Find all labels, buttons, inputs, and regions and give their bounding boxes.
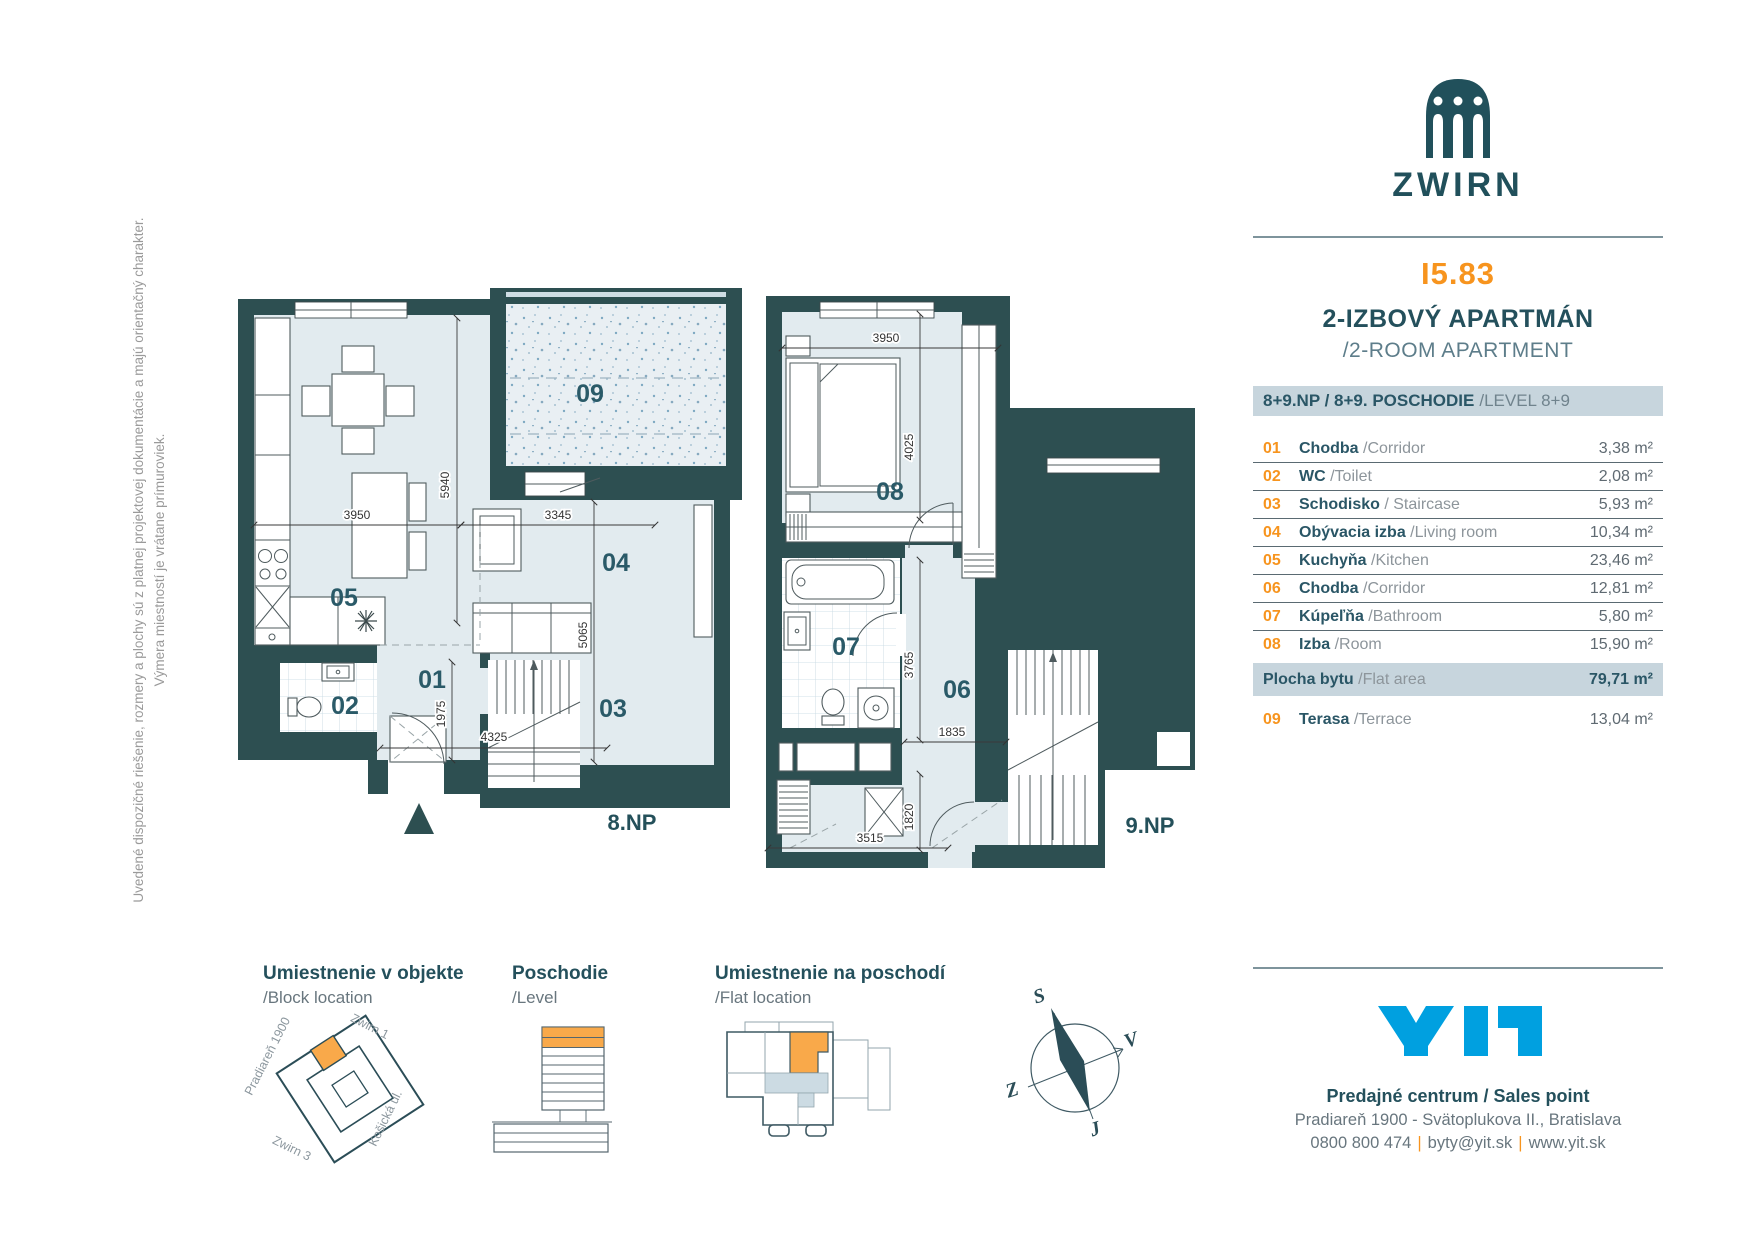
website-link[interactable]: www.yit.sk [1529, 1134, 1606, 1152]
vent-grille [777, 780, 810, 834]
apartment-type-sk: 2-IZBOVÝ APARTMÁN [1253, 305, 1663, 334]
room-label-04: 04 [602, 549, 630, 577]
row-name-en: /Kitchen [1371, 552, 1429, 569]
tv-board [694, 505, 712, 637]
terrace-floor [506, 304, 726, 466]
row-name-en: /Living room [1410, 524, 1497, 541]
legend-header: 8+9.NP / 8+9. POSCHODIE /LEVEL 8+9 [1253, 386, 1663, 416]
sales-point-title: Predajné centrum / Sales point [1253, 1086, 1663, 1107]
row-num: 09 [1263, 711, 1299, 729]
room-label-05: 05 [330, 584, 358, 612]
dim-kitchen-width: 3950 [344, 508, 371, 522]
room-label-09: 09 [576, 380, 604, 408]
hob-icon [355, 610, 377, 632]
level-diagram [492, 1027, 612, 1152]
bathtub [786, 560, 894, 604]
plan-8np: 3950 3345 5940 5065 1975 4325 05 01 02 0… [238, 288, 742, 835]
kitchen-counter [255, 318, 290, 645]
yit-logo [1378, 1006, 1542, 1056]
table-row: 02 WC /Toilet 2,08 m² [1253, 463, 1663, 491]
row-num: 03 [1263, 496, 1299, 514]
row-num: 08 [1263, 636, 1299, 654]
row-name-sk: Izba [1299, 636, 1330, 653]
table-row: 06 Chodba /Corridor 12,81 m² [1253, 575, 1663, 603]
row-area: 2,08 m² [1599, 468, 1653, 486]
unit-id: I5.83 [1253, 256, 1663, 292]
entry-opening [388, 760, 444, 794]
bath-sink [784, 612, 810, 650]
row-area: 12,81 m² [1590, 580, 1653, 598]
dim-bed-height: 4025 [902, 433, 916, 460]
row-name-sk: Kúpeľňa [1299, 608, 1364, 625]
row-name-sk: Obývacia izba [1299, 524, 1406, 541]
row-area: 5,93 m² [1599, 496, 1653, 514]
compass-east: V [1121, 1027, 1142, 1053]
row-name-sk: Terasa [1299, 711, 1349, 728]
row-name-en: /Corridor [1363, 440, 1425, 457]
row-name-sk: Schodisko [1299, 496, 1380, 513]
row-name-en: /Bathroom [1368, 608, 1442, 625]
entrance-arrow-icon [404, 803, 434, 834]
plan-9np: 3950 4025 3765 1835 1820 3515 08 07 06 9… [766, 296, 1195, 868]
zwirn-wordmark: ZWIRN [1392, 166, 1523, 204]
section-flat-location: Umiestnenie na poschodí /Flat location [715, 963, 945, 1008]
flat-area-summary: Plocha bytu /Flat area 79,71 m² [1253, 663, 1663, 696]
dim-living-width: 3345 [545, 508, 572, 522]
window-core [1047, 458, 1160, 473]
row-name-sk: Chodba [1299, 440, 1359, 457]
room-label-06: 06 [943, 676, 971, 704]
section-level: Poschodie /Level [512, 963, 608, 1008]
row-name-sk: Kuchyňa [1299, 552, 1367, 569]
section-subtitle: /Flat location [715, 988, 945, 1008]
row-name-en: /Corridor [1363, 580, 1425, 597]
wardrobe [962, 325, 996, 578]
dim-bed-width: 3950 [873, 331, 900, 345]
section-subtitle: /Block location [263, 988, 464, 1008]
dim-corr-height: 3765 [902, 651, 916, 678]
compass-south: J [1086, 1117, 1104, 1142]
row-area: 23,46 m² [1590, 552, 1653, 570]
highlighted-level-9 [542, 1027, 604, 1038]
row-area: 13,04 m² [1590, 711, 1653, 729]
wc-sink [322, 663, 354, 681]
sofa [473, 603, 591, 653]
window-bedroom [820, 302, 934, 318]
dim-bottom-width-9: 3515 [857, 831, 884, 845]
dim-bottom-width: 4325 [481, 730, 508, 744]
total-label-sk: Plocha bytu [1263, 671, 1354, 689]
row-name-sk: Chodba [1299, 580, 1359, 597]
row-name-en: / Staircase [1384, 496, 1460, 513]
dim-living-height: 5065 [576, 621, 590, 648]
row-name-sk: WC [1299, 468, 1326, 485]
row-num: 06 [1263, 580, 1299, 598]
row-name-en: /Toilet [1330, 468, 1372, 485]
room-label-02: 02 [331, 692, 359, 720]
highlighted-level-8 [542, 1038, 604, 1048]
dim-entry-height: 1975 [434, 700, 448, 727]
toilet-icon [288, 697, 321, 717]
table-row: 01 Chodba /Corridor 3,38 m² [1253, 435, 1663, 463]
room-label-07: 07 [832, 633, 860, 661]
dim-corr-width: 1835 [939, 725, 966, 739]
row-area: 10,34 m² [1590, 524, 1653, 542]
sales-point-address: Pradiareň 1900 - Svätoplukova II., Brati… [1253, 1111, 1663, 1130]
dim-kitchen-height: 5940 [438, 471, 452, 498]
table-row: 08 Izba /Room 15,90 m² [1253, 631, 1663, 658]
corridor-highlight [765, 1073, 828, 1093]
separator: | [1512, 1134, 1528, 1152]
staircase-8np [488, 660, 580, 788]
separator: | [1411, 1134, 1427, 1152]
table-row: 04 Obývacia izba /Living room 10,34 m² [1253, 519, 1663, 547]
legend-header-light: /LEVEL 8+9 [1479, 391, 1570, 411]
floor-label-8np: 8.NP [608, 810, 657, 835]
table-row: 03 Schodisko / Staircase 5,93 m² [1253, 491, 1663, 519]
floor-label-9np: 9.NP [1126, 813, 1175, 838]
legend-table: 01 Chodba /Corridor 3,38 m² 02 WC /Toile… [1253, 435, 1663, 658]
sales-point-contacts: 0800 800 474|byty@yit.sk|www.yit.sk [1253, 1134, 1663, 1153]
washing-machine [858, 688, 894, 728]
row-name-en: /Terrace [1354, 711, 1412, 728]
terrace-railing [506, 292, 726, 297]
window-kitchen [295, 302, 407, 318]
row-num: 04 [1263, 524, 1299, 542]
bench [786, 512, 962, 542]
section-block-location: Umiestnenie v objekte /Block location [263, 963, 464, 1008]
flat-location-diagram [727, 1022, 890, 1136]
row-num: 07 [1263, 608, 1299, 626]
terrace-row: 09 Terasa /Terrace 13,04 m² [1253, 706, 1663, 733]
label-zwirn3: Zwirn 3 [270, 1133, 313, 1164]
apartment-type-en: /2-ROOM APARTMENT [1253, 339, 1663, 363]
section-title: Umiestnenie na poschodí [715, 963, 945, 985]
row-name-en: /Room [1335, 636, 1382, 653]
row-area: 15,90 m² [1590, 636, 1653, 654]
shaft [865, 788, 903, 836]
section-title: Poschodie [512, 963, 608, 985]
compass-north: S [1030, 984, 1047, 1008]
total-area: 79,71 m² [1589, 671, 1653, 689]
room-label-01: 01 [418, 666, 446, 694]
disclaimer-line1: Uvedené dispozičné riešenie, rozmery a p… [129, 215, 150, 905]
room-label-08: 08 [876, 478, 904, 506]
room-label-03: 03 [599, 695, 627, 723]
disclaimer-line2: Výmera miestností je vrátane prímuroviek… [150, 215, 171, 905]
section-title: Umiestnenie v objekte [263, 963, 464, 985]
row-num: 02 [1263, 468, 1299, 486]
disclaimer-text: Uvedené dispozičné riešenie, rozmery a p… [129, 215, 169, 905]
phone-number: 0800 800 474 [1310, 1134, 1411, 1152]
floorplan-sheet: 3950 3345 5940 5065 1975 4325 05 01 02 0… [0, 0, 1753, 1240]
row-num: 01 [1263, 440, 1299, 458]
table-row: 07 Kúpeľňa /Bathroom 5,80 m² [1253, 603, 1663, 631]
row-area: 5,80 m² [1599, 608, 1653, 626]
block-location-diagram: Zwirn 1 Pradiareň 1900 Košická ul. Zwirn… [242, 1011, 424, 1164]
email-link[interactable]: byty@yit.sk [1428, 1134, 1513, 1152]
row-area: 3,38 m² [1599, 440, 1653, 458]
total-label-en: /Flat area [1358, 671, 1426, 689]
compass-west: Z [1002, 1078, 1021, 1103]
zwirn-logo: ZWIRN [1392, 79, 1523, 204]
legend-header-bold: 8+9.NP / 8+9. POSCHODIE [1263, 391, 1474, 411]
dim-store-height: 1820 [902, 803, 916, 830]
compass-needle [1051, 1008, 1090, 1112]
table-row: 05 Kuchyňa /Kitchen 23,46 m² [1253, 547, 1663, 575]
section-subtitle: /Level [512, 988, 608, 1008]
compass-icon: S V J Z [1002, 984, 1142, 1141]
toilet-9np [822, 689, 844, 725]
row-num: 05 [1263, 552, 1299, 570]
